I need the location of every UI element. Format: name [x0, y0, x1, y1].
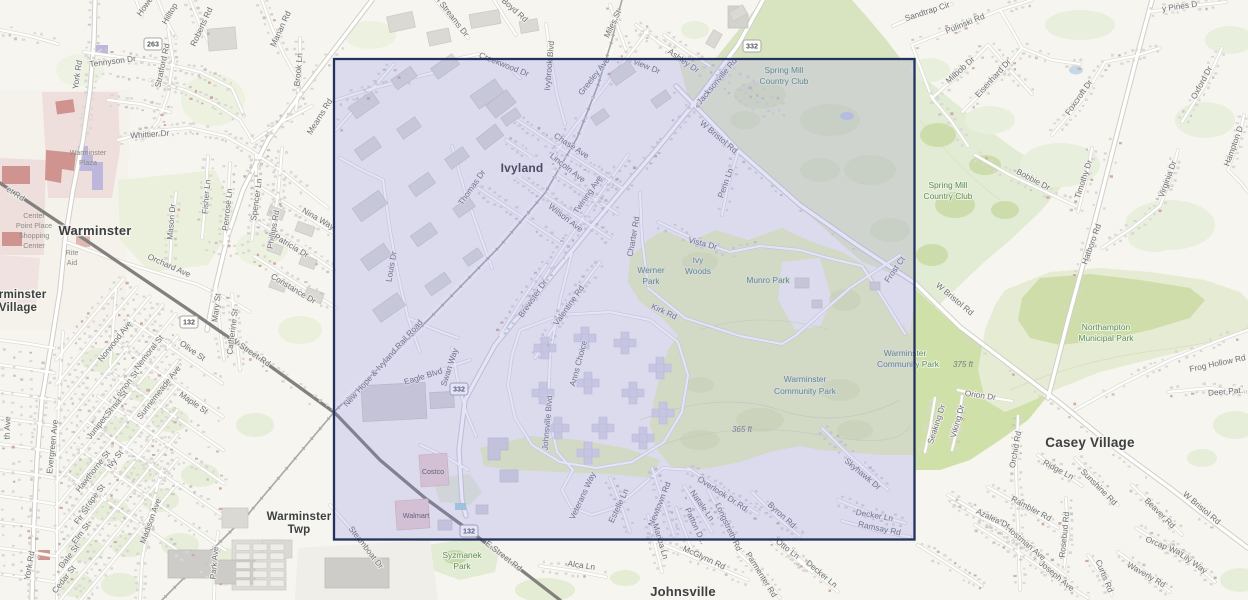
svg-text:Warminster: Warminster	[70, 148, 107, 157]
svg-text:th Ave: th Ave	[2, 416, 13, 440]
svg-text:375 ft: 375 ft	[953, 360, 974, 369]
svg-text:Johnsville: Johnsville	[650, 584, 716, 599]
svg-text:Rite: Rite	[66, 248, 79, 257]
svg-text:Park: Park	[453, 561, 471, 571]
svg-text:132: 132	[183, 318, 195, 327]
svg-text:Northampton: Northampton	[1082, 322, 1131, 332]
svg-text:Warminster: Warminster	[267, 511, 332, 523]
svg-text:Center: Center	[23, 241, 45, 250]
svg-text:Twp: Twp	[288, 524, 311, 536]
svg-text:Center: Center	[23, 211, 45, 220]
svg-text:263: 263	[147, 40, 159, 49]
svg-text:Municipal Park: Municipal Park	[1079, 333, 1135, 343]
svg-text:Warminster: Warminster	[58, 223, 131, 238]
svg-text:Spring Mill: Spring Mill	[928, 180, 967, 190]
svg-text:Country Club: Country Club	[924, 191, 973, 201]
svg-text:332: 332	[746, 42, 758, 51]
svg-text:Point Place: Point Place	[16, 221, 52, 230]
svg-text:Shopping: Shopping	[19, 231, 49, 240]
svg-text:Syzmanek: Syzmanek	[442, 550, 482, 560]
svg-text:Village: Village	[0, 302, 37, 314]
svg-text:Plaza: Plaza	[79, 158, 97, 167]
svg-text:Aid: Aid	[67, 258, 77, 267]
svg-text:Warminster: Warminster	[0, 289, 47, 301]
svg-text:Casey Village: Casey Village	[1045, 435, 1135, 450]
